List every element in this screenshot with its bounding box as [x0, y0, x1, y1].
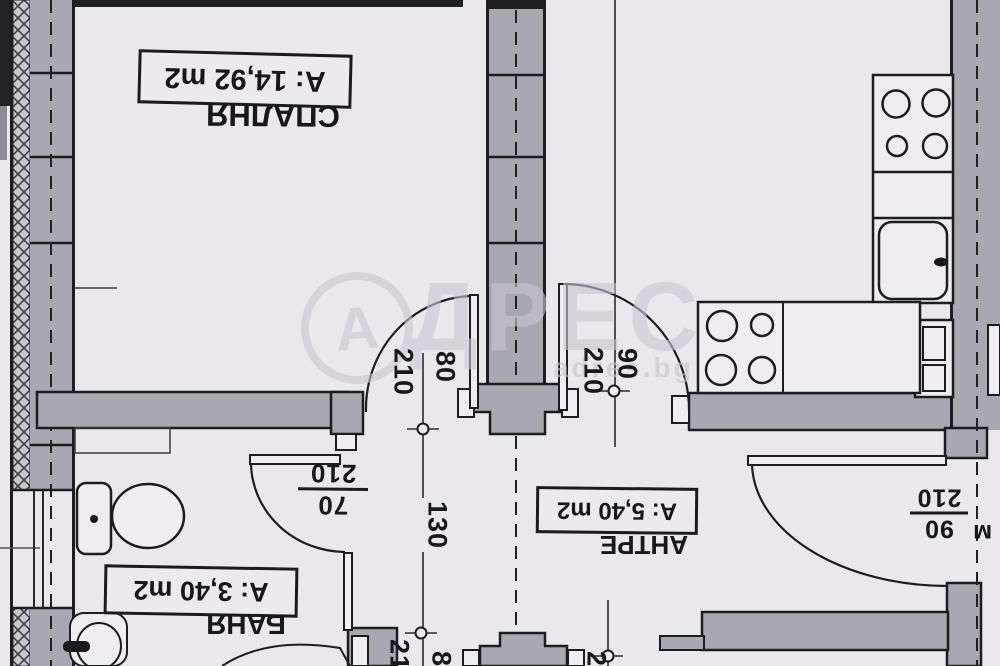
bedroom-name-label: СПАЛНЯ	[198, 95, 348, 134]
bathroom-window	[13, 490, 75, 608]
toilet	[77, 483, 184, 554]
bedroom-door-height-dim: 210	[388, 348, 419, 396]
entry-door-dim: 90 210	[910, 484, 968, 542]
bedroom-door-width-dim: 80	[430, 351, 461, 383]
bathroom-door-height-dim: 210	[310, 459, 357, 487]
kitchen-south-wall	[672, 393, 955, 430]
partial-dim-height: 21	[384, 639, 415, 666]
left-exterior-wall	[0, 0, 117, 666]
bathroom-door-width-dim: 70	[317, 491, 348, 519]
partial-dim-small: 2	[581, 651, 612, 666]
kitchen-sink	[879, 222, 948, 299]
partial-dim-width: 8	[426, 651, 457, 666]
floor-plan: А ДРЕС adres.bg A: 14,92 m2 СПАЛНЯ A: 3,…	[0, 0, 1000, 666]
hall-width-dim: 130	[422, 498, 453, 552]
bathroom-door-dim: 70 210	[298, 459, 369, 519]
entry-door-width-dim: 90	[924, 515, 954, 541]
bathroom-name-label: БАНЯ	[196, 608, 296, 640]
kitchen-door-height-dim: 210	[578, 347, 609, 395]
middle-wall-column	[473, 384, 563, 434]
dim-fraction-bar	[910, 511, 968, 514]
bathtub-edge	[222, 645, 350, 666]
hall-area-label: A: 5,40 m2	[536, 486, 698, 535]
entry-door-height-dim: 210	[917, 484, 962, 510]
bedroom-south-wall	[37, 392, 363, 453]
partial-right-text: м	[972, 518, 992, 549]
bottom-right-wall	[660, 612, 948, 650]
bottom-column	[480, 633, 567, 666]
hall-name-label: АНТРЕ	[592, 530, 696, 560]
kitchen-door-width-dim: 90	[612, 348, 643, 380]
bathroom-sink	[63, 613, 127, 666]
